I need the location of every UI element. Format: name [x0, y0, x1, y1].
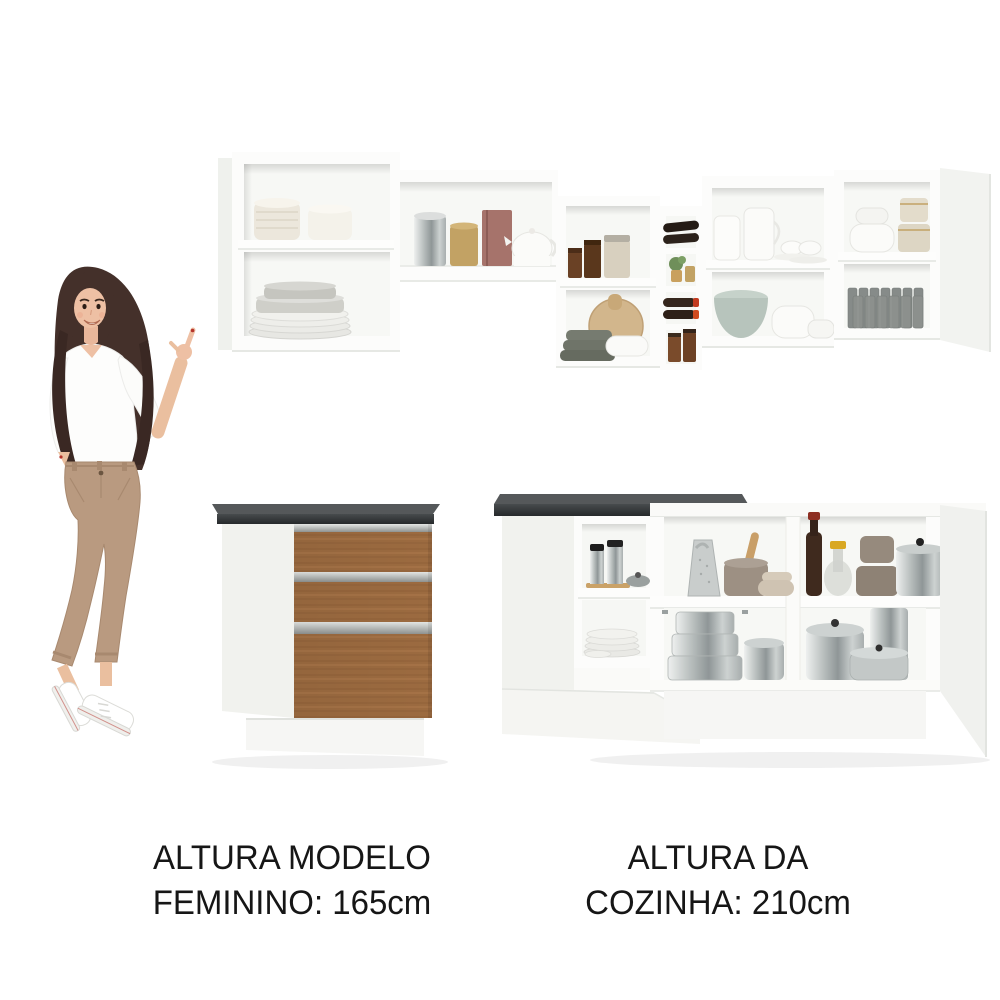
- cabinet-side: [222, 524, 294, 718]
- product-image: ALTURA MODELO FEMININO: 165cm ALTURA DA …: [0, 0, 1000, 1000]
- countertop-top: [212, 504, 440, 514]
- plate-stack-and-casseroles: [249, 282, 351, 340]
- caption-model-height: ALTURA MODELO FEMININO: 165cm: [117, 836, 466, 926]
- caption-kitchen-line2: COZINHA: 210cm: [543, 881, 892, 926]
- pointing-arm: [158, 329, 194, 432]
- base-drawer-cabinet: [212, 504, 448, 769]
- caption-model-line1: ALTURA MODELO: [117, 836, 466, 881]
- caption-model-line2: FEMININO: 165cm: [117, 881, 466, 926]
- wall-cabinet-middle: [556, 196, 660, 368]
- open-counter-right: [650, 503, 986, 757]
- bridge-shelf-cabinet: [400, 170, 558, 282]
- ankles-and-sneakers: [51, 662, 138, 737]
- model-figure: [50, 267, 194, 738]
- neck: [84, 326, 98, 345]
- fingernail: [191, 329, 195, 333]
- tan-trousers: [52, 461, 140, 666]
- plate-stack: [584, 629, 640, 658]
- corner-base-counter: [494, 494, 990, 768]
- upper-wall-cabinets: [218, 152, 990, 370]
- upper-side-panel: [940, 168, 990, 352]
- corner-open-column: [574, 516, 654, 690]
- wall-cabinet-left: [218, 152, 400, 352]
- drawer-fronts: [294, 524, 432, 718]
- glass-tumblers: [848, 288, 923, 328]
- wall-cabinet-right-a: [702, 176, 834, 348]
- corner-wine-rack: [660, 206, 702, 370]
- corner-countertop-top: [494, 494, 748, 504]
- counter-end-panel: [940, 505, 986, 757]
- countertop-edge: [217, 514, 434, 524]
- caption-kitchen-line1: ALTURA DA: [543, 836, 892, 881]
- wall-cabinet-right-b: [834, 170, 940, 340]
- caption-kitchen-height: ALTURA DA COZINHA: 210cm: [543, 836, 892, 926]
- plinth: [246, 718, 424, 756]
- face: [74, 288, 106, 328]
- corner-side-panel: [502, 516, 574, 696]
- counter-plinth: [664, 691, 926, 739]
